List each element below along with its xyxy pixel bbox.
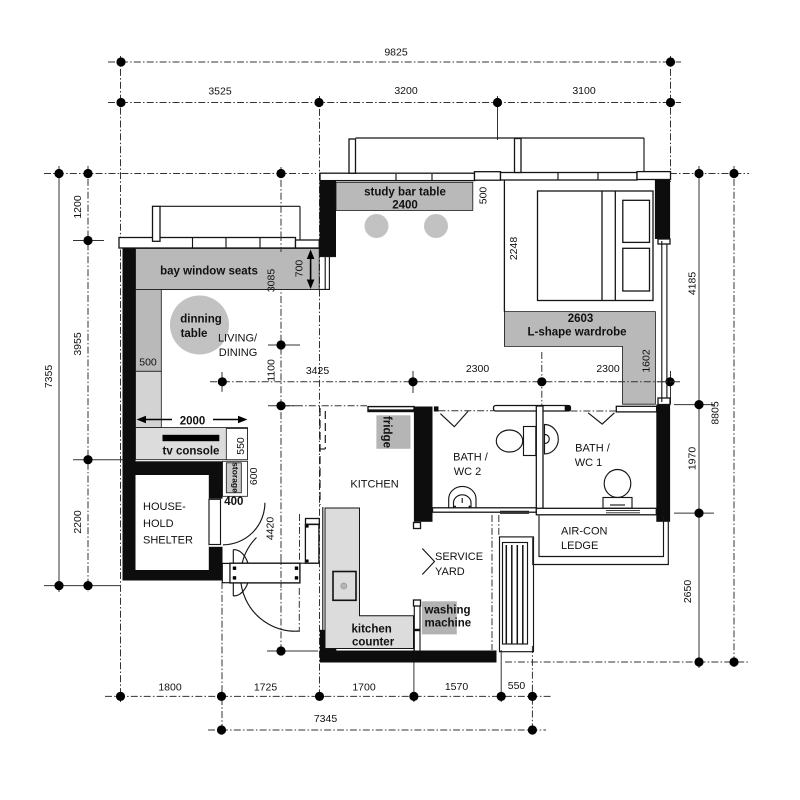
svg-text:7345: 7345	[314, 713, 338, 725]
svg-text:1100: 1100	[265, 359, 277, 382]
svg-text:3085: 3085	[266, 269, 278, 293]
svg-text:YARD: YARD	[435, 566, 465, 578]
svg-text:1200: 1200	[72, 195, 84, 219]
svg-text:2650: 2650	[682, 580, 694, 604]
svg-text:4185: 4185	[687, 272, 699, 296]
svg-text:WC 1: WC 1	[575, 457, 603, 469]
svg-text:SHELTER: SHELTER	[143, 535, 193, 547]
svg-text:BATH /: BATH /	[575, 443, 611, 455]
svg-text:counter: counter	[352, 637, 395, 649]
svg-text:L-shape wardrobe: L-shape wardrobe	[527, 327, 626, 339]
svg-text:3200: 3200	[394, 85, 418, 97]
svg-text:3100: 3100	[572, 85, 596, 97]
svg-text:machine: machine	[425, 618, 472, 630]
svg-text:dinning: dinning	[180, 314, 222, 326]
svg-text:WC 2: WC 2	[454, 466, 482, 478]
svg-text:1602: 1602	[641, 349, 653, 373]
svg-text:8805: 8805	[710, 401, 722, 425]
svg-text:400: 400	[224, 496, 243, 508]
svg-text:9825: 9825	[384, 47, 408, 59]
svg-text:table: table	[181, 328, 208, 340]
svg-text:LIVING/: LIVING/	[218, 333, 258, 345]
svg-text:2400: 2400	[392, 200, 418, 212]
svg-text:DINING: DINING	[219, 347, 258, 359]
svg-text:1700: 1700	[352, 682, 376, 694]
svg-text:study bar table: study bar table	[364, 187, 446, 199]
svg-text:1725: 1725	[254, 682, 278, 694]
svg-text:fridge: fridge	[381, 416, 393, 448]
svg-text:1570: 1570	[445, 681, 469, 693]
svg-text:HOLD: HOLD	[143, 518, 174, 530]
svg-text:AIR-CON: AIR-CON	[561, 526, 608, 538]
svg-text:tv console: tv console	[163, 446, 220, 458]
svg-text:storage: storage	[231, 462, 241, 493]
svg-text:LEDGE: LEDGE	[561, 540, 598, 552]
svg-text:BATH /: BATH /	[453, 452, 489, 464]
svg-text:washing: washing	[424, 605, 471, 617]
svg-text:1970: 1970	[687, 447, 699, 471]
svg-text:kitchen: kitchen	[352, 624, 392, 636]
svg-text:2300: 2300	[466, 363, 490, 375]
svg-text:4420: 4420	[265, 517, 277, 541]
svg-text:3955: 3955	[72, 332, 84, 356]
svg-text:500: 500	[139, 357, 157, 369]
svg-text:HOUSE-: HOUSE-	[143, 501, 186, 513]
svg-text:2248: 2248	[508, 237, 520, 261]
svg-text:550: 550	[508, 680, 526, 692]
svg-text:500: 500	[478, 187, 490, 205]
svg-text:3525: 3525	[208, 86, 232, 98]
svg-text:600: 600	[248, 467, 260, 485]
svg-text:7355: 7355	[43, 365, 55, 389]
svg-text:550: 550	[235, 437, 247, 455]
svg-text:1800: 1800	[158, 682, 182, 694]
svg-text:KITCHEN: KITCHEN	[350, 479, 398, 491]
svg-text:700: 700	[294, 260, 306, 278]
svg-text:2300: 2300	[596, 363, 620, 375]
svg-text:2603: 2603	[568, 313, 594, 325]
svg-text:SERVICE: SERVICE	[435, 551, 483, 563]
svg-text:bay window seats: bay window seats	[160, 266, 258, 278]
svg-text:3425: 3425	[306, 365, 330, 377]
svg-text:2000: 2000	[180, 416, 206, 428]
svg-text:2200: 2200	[72, 510, 84, 534]
